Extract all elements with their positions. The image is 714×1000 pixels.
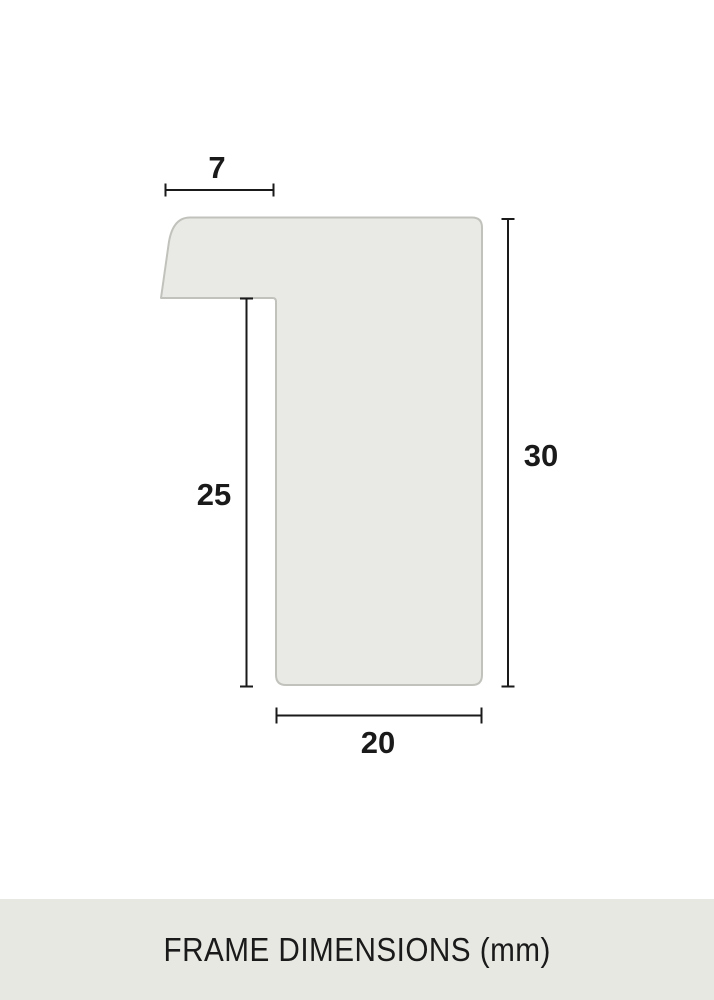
dimension-label-bottom-width: 20 — [361, 725, 395, 760]
caption-bar: FRAME DIMENSIONS (mm) — [0, 899, 714, 1000]
dimension-label-inner-height: 25 — [197, 477, 231, 512]
dimension-inner-height: 25 — [197, 299, 253, 687]
frame-dimension-diagram: 7 25 30 20 FRAME DIMENSIONS (mm) — [0, 0, 714, 1000]
frame-profile-shape — [161, 218, 482, 686]
profile-diagram-canvas: 7 25 30 20 — [0, 0, 714, 1000]
caption-text: FRAME DIMENSIONS (mm) — [163, 931, 550, 969]
dimension-label-top-width: 7 — [208, 150, 225, 185]
dimension-top-width: 7 — [166, 150, 274, 197]
dimension-label-outer-height: 30 — [524, 438, 558, 473]
dimension-outer-height: 30 — [502, 219, 559, 687]
dimension-bottom-width: 20 — [277, 708, 482, 761]
